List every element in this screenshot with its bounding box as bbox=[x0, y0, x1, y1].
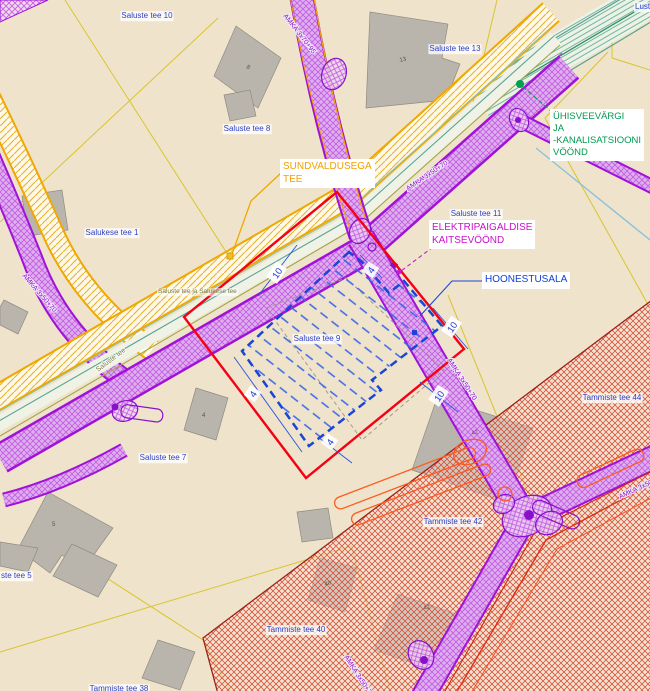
parcel-label-tammiste-tee-44: Tammiste tee 44 bbox=[582, 393, 643, 403]
detail-plan-map: 10 10 10 4 4 4 8 13 4 5 42 40 42 AMKA bbox=[0, 0, 650, 691]
parcel-label-lusti: Lust bbox=[634, 2, 650, 12]
parcel-label-saluste-tee-10: Saluste tee 10 bbox=[120, 11, 173, 21]
road-name-combined: Saluste tee ja Salukese tee bbox=[157, 288, 238, 296]
callout-line: ÜHISVEEVÄRGI bbox=[553, 111, 641, 123]
callout-hoonestusala: HOONESTUSALA bbox=[482, 272, 570, 289]
elektripaigaldise-marker bbox=[397, 270, 402, 275]
callout-line: VÖÖND bbox=[553, 147, 641, 159]
callout-line: ELEKTRIPAIGALDISE bbox=[432, 222, 532, 235]
map-canvas: 10 10 10 4 4 4 8 13 4 5 42 40 42 AMKA bbox=[0, 0, 650, 691]
callout-sundvaldusega-tee: SUNDVALDUSEGA TEE bbox=[280, 159, 375, 188]
parcel-label-saluste-tee-8: Saluste tee 8 bbox=[223, 124, 272, 134]
callout-line: -KANALISATSIOONI bbox=[553, 135, 641, 147]
callout-uhisveevargi-voond: ÜHISVEEVÄRGI JA -KANALISATSIOONI VÖÖND bbox=[550, 109, 644, 161]
callout-line: HOONESTUSALA bbox=[485, 274, 567, 287]
callout-line: SUNDVALDUSEGA bbox=[283, 161, 372, 174]
parcel-label-tammiste-tee-38: Tammiste tee 38 bbox=[89, 684, 150, 691]
parcel-label-salukese-tee-1: Salukese tee 1 bbox=[85, 228, 140, 238]
water-sewer-point bbox=[516, 80, 524, 88]
parcel-label-saluste-tee-7: Saluste tee 7 bbox=[139, 453, 188, 463]
survey-point-blue bbox=[412, 330, 417, 335]
parcel-label-saluste-tee-13: Saluste tee 13 bbox=[428, 44, 481, 54]
building bbox=[224, 90, 256, 121]
parcel-label-saluste-tee-9: Saluste tee 9 bbox=[293, 334, 342, 344]
parcel-label-tammiste-tee-40: Tammiste tee 40 bbox=[266, 625, 327, 635]
sundvaldusega-marker bbox=[227, 253, 233, 259]
callout-line: JA bbox=[553, 123, 641, 135]
parcel-label-tammiste-tee-42: Tammiste tee 42 bbox=[423, 517, 484, 527]
callout-elektripaigaldise-kaitsevoond: ELEKTRIPAIGALDISE KAITSEVÖÖND bbox=[429, 220, 535, 249]
parcel-label-saluste-tee-11: Saluste tee 11 bbox=[450, 209, 503, 219]
building bbox=[297, 508, 333, 542]
callout-line: TEE bbox=[283, 174, 372, 187]
callout-line: KAITSEVÖÖND bbox=[432, 235, 532, 248]
parcel-label-saluste-tee-5: ste tee 5 bbox=[0, 571, 33, 581]
